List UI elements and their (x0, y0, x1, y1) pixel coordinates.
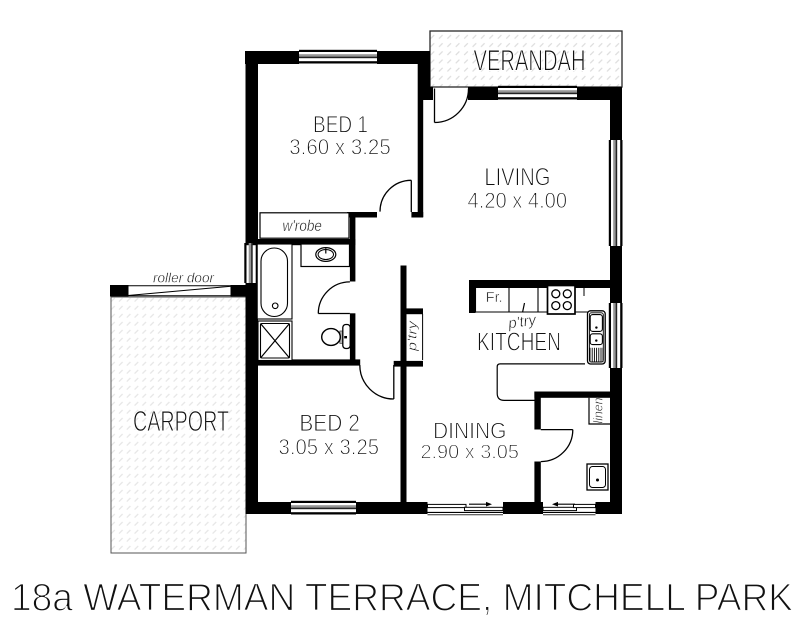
svg-text:linen: linen (592, 397, 606, 423)
svg-text:Fr.: Fr. (486, 290, 503, 306)
svg-text:2.90 x 3.05: 2.90 x 3.05 (420, 440, 519, 463)
svg-text:KITCHEN: KITCHEN (477, 327, 561, 357)
svg-text:VERANDAH: VERANDAH (474, 44, 586, 77)
svg-text:w'robe: w'robe (282, 218, 322, 235)
svg-text:18a WATERMAN TERRACE, MITCHELL: 18a WATERMAN TERRACE, MITCHELL PARK (11, 577, 793, 620)
svg-text:3.05 x 3.25: 3.05 x 3.25 (279, 434, 380, 459)
svg-text:roller door: roller door (153, 270, 215, 286)
svg-text:BED 2: BED 2 (299, 410, 360, 437)
svg-text:4.20 x 4.00: 4.20 x 4.00 (468, 188, 568, 213)
svg-text:p'try: p'try (406, 320, 420, 352)
svg-text:3.60 x 3.25: 3.60 x 3.25 (289, 135, 391, 160)
svg-text:CARPORT: CARPORT (133, 406, 229, 438)
